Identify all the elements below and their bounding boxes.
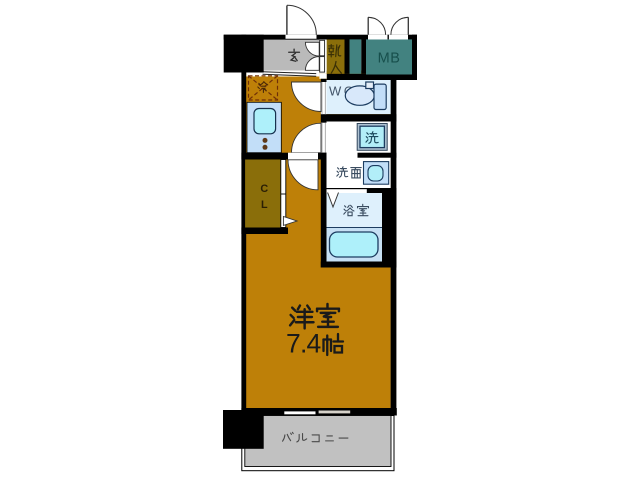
svg-text:L: L [261,199,268,211]
svg-text:7.4: 7.4 [286,329,321,359]
svg-text:MB: MB [378,51,401,67]
svg-text:C: C [260,183,268,195]
